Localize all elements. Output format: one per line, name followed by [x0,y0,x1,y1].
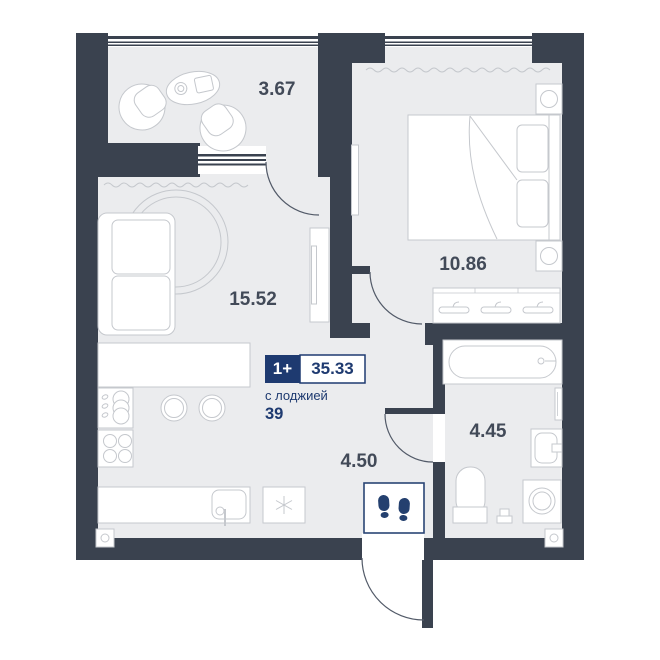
bathtub-faucet [538,358,544,364]
nightstand-icon [536,241,562,271]
nightstand-top [536,241,562,271]
window-line [108,36,318,39]
mat-frame [364,483,424,533]
bathroom-door-leaf [385,408,445,414]
badge-rooms-label: 1+ [273,359,292,378]
bathtub-icon [443,340,562,384]
floor-plan-page: 3.67 15.52 10.86 4.45 4.50 1+ 35.33 с ло… [0,0,660,660]
nightstand-icon [536,84,562,114]
nightstand-top [536,84,562,114]
hanger-bar [481,307,511,313]
toilet-icon [453,467,487,523]
entry-mat-icon [364,483,424,533]
stove-icon [98,430,133,467]
wall-hall-stub [330,323,370,338]
vent-box [545,529,563,547]
badge-note: с лоджией [265,388,328,403]
floor-plan: 3.67 15.52 10.86 4.45 4.50 1+ 35.33 с ло… [0,0,660,660]
sink-tap [552,444,562,452]
plate [113,408,129,424]
sofa-cushion [112,220,170,274]
sofa-cushion [112,276,170,330]
wall-bottom-left [76,538,362,560]
window-line [385,45,532,47]
window-line [108,45,318,47]
window-line [198,154,266,157]
brush-base [497,516,512,523]
wall-entrance-jamb [422,560,433,628]
balcony-door-window [198,146,266,174]
stool-icon [199,395,225,421]
pillow-icon [517,180,548,227]
wall-bedroom-door-stub [352,266,370,274]
vent-icon [96,529,114,547]
wall-living-bedroom [330,177,352,323]
pillow-icon [517,125,548,172]
room-area-label-hall: 4.50 [341,451,378,472]
room-area-label-living: 15.52 [229,289,277,310]
shelf-frame [555,388,562,420]
room-area-label-bathroom: 4.45 [470,421,507,442]
dishrack-icon [98,388,133,428]
vent-icon [545,529,563,547]
window-line [385,36,532,39]
hanger-bar [523,307,553,313]
window-line [198,159,266,161]
badge-area-value: 35.33 [311,359,354,378]
hanger-bar [439,307,469,313]
wall-bathroom-lower [433,462,445,538]
room-area-label-loggia: 3.67 [259,79,296,100]
entrance-threshold [362,533,424,560]
bathroom-sink-icon [531,429,562,467]
kitchen-counter-icon [98,343,250,387]
vent-box [96,529,114,547]
window-line [108,42,318,44]
sofa-icon [98,213,175,335]
entrance-door-arc [362,558,424,620]
tray-icon [194,75,214,93]
mirror-icon [352,145,359,215]
stool-icon [161,395,187,421]
sink-faucet [216,507,224,515]
bedroom-window [385,33,532,47]
wall-right [562,33,584,560]
window-line [198,164,266,166]
room-area-label-bedroom: 10.86 [439,254,487,275]
kitchen-counter-bottom [98,487,250,523]
wardrobe-icon [433,288,560,323]
window-line [385,42,532,44]
wall-loggia-living [76,143,200,177]
loggia-window [108,33,318,47]
fridge-icon [263,487,305,523]
tv-stand-icon [310,228,329,322]
tv-screen [312,246,317,304]
toilet-tank [453,507,487,523]
bed-headboard [549,115,560,240]
wall-top-middle [318,33,385,63]
washing-machine-icon [523,480,561,523]
badge-note-area: 39 [265,405,283,423]
bathroom-shelf-icon [555,388,562,420]
